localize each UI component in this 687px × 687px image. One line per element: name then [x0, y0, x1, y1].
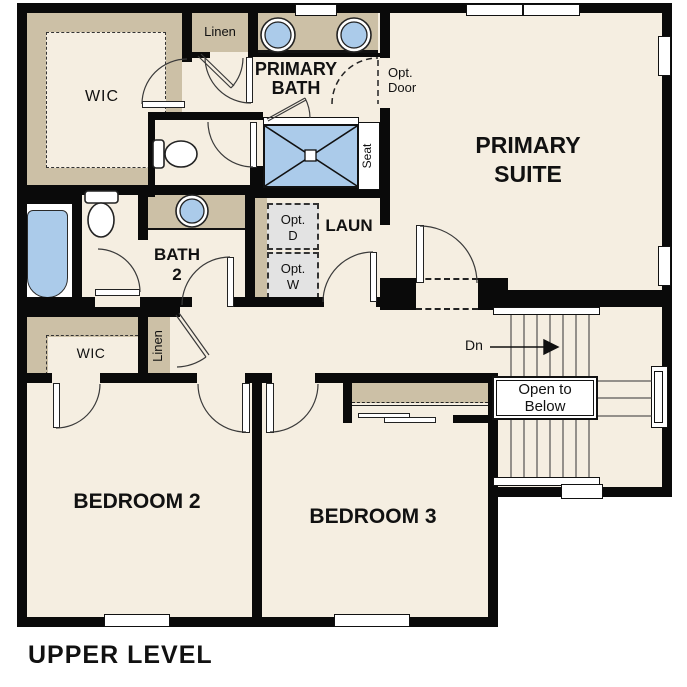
linen-upper-label: Linen [190, 25, 250, 39]
shower-drain [305, 150, 316, 161]
primary-suite-label: PRIMARY SUITE [448, 131, 608, 189]
stair-landing-railing [598, 381, 652, 416]
door-arc-bedroom2 [198, 384, 246, 432]
door-leaf-shower [267, 98, 306, 121]
sink-primary-1-basin [265, 22, 291, 48]
door-leaf-linen-hall [176, 313, 209, 357]
toilet-bath2-bowl [88, 203, 114, 237]
bedroom2-label: BEDROOM 2 [57, 490, 217, 513]
door-arc-primary-suite [420, 226, 477, 283]
opt-door-label: Opt. Door [388, 66, 434, 96]
toilet-primary-tank [153, 140, 164, 168]
wic-bedroom2-label: WIC [61, 346, 121, 361]
floor-plan: Open to Below Dn Seat [0, 0, 687, 687]
linen-hall-label: Linen [151, 318, 167, 374]
bedroom3-label: BEDROOM 3 [293, 505, 453, 528]
laundry-label: LAUN [318, 217, 380, 236]
sink-primary-2-basin [341, 22, 367, 48]
wic-primary-label: WIC [62, 88, 142, 106]
stair-treads-lower [511, 420, 589, 477]
door-arc-linen-upper [231, 58, 243, 88]
door-arc-wic2-bedroom2 [56, 384, 100, 428]
door-arc-tub-compartment [98, 249, 140, 292]
opt-dryer-label: Opt. D [278, 212, 308, 243]
door-arc-linen-hall [177, 357, 206, 367]
door-arc-wic-primary [142, 59, 187, 104]
door-leaf-linen-upper [198, 54, 234, 88]
door-arc-laundry [323, 252, 373, 302]
door-arc-toilet-nook [208, 122, 253, 167]
primary-bath-label: PRIMARY BATH [246, 60, 346, 98]
sink-bath2-basin [180, 199, 204, 223]
page-title: UPPER LEVEL [28, 641, 213, 670]
toilet-bath2-tank [85, 191, 118, 203]
toilet-primary-bowl [165, 141, 197, 167]
door-arc-shower [305, 98, 310, 118]
opt-washer-label: Opt. W [278, 261, 308, 292]
bath2-label: BATH 2 [152, 245, 202, 284]
door-arc-bedroom3 [270, 384, 318, 432]
stairs-down-arrow-head [544, 340, 558, 354]
